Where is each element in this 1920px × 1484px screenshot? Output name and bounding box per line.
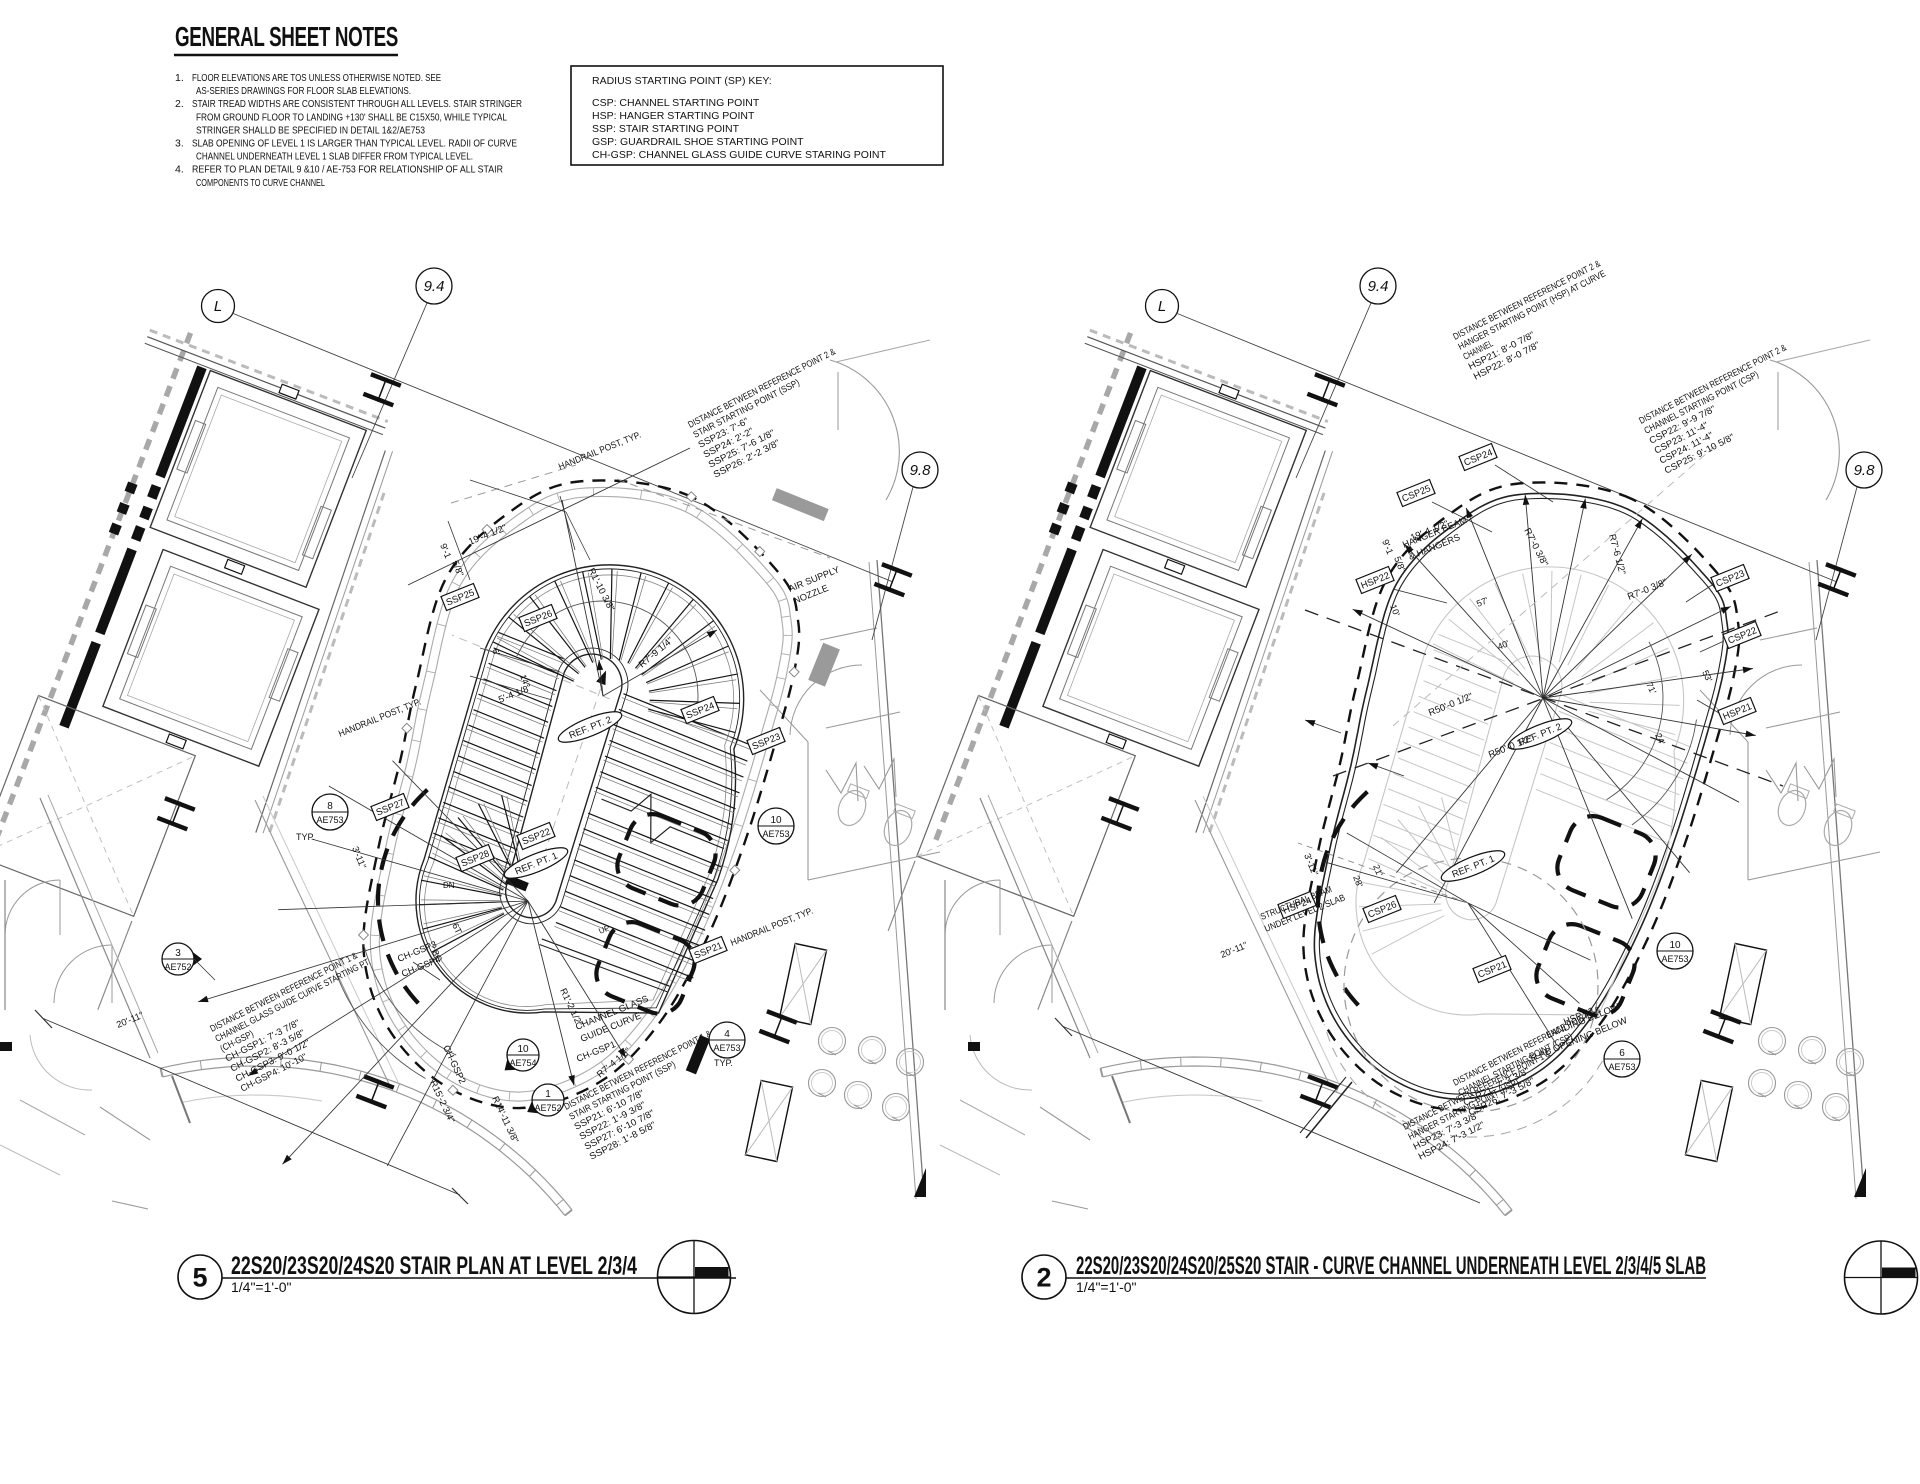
svg-text:10: 10 xyxy=(517,1044,529,1055)
svg-text:STRINGER SHALLD BE SPECIFIED I: STRINGER SHALLD BE SPECIFIED IN DETAIL 1… xyxy=(196,124,425,136)
svg-text:9.4: 9.4 xyxy=(424,278,445,295)
svg-text:TYP.: TYP. xyxy=(714,1058,733,1068)
svg-text:3.: 3. xyxy=(175,138,184,150)
svg-text:AE753: AE753 xyxy=(762,829,789,839)
svg-text:COMPONENTS TO CURVE CHANNEL: COMPONENTS TO CURVE CHANNEL xyxy=(196,177,325,189)
svg-text:RADIUS STARTING POINT (SP) KEY: RADIUS STARTING POINT (SP) KEY: xyxy=(592,75,772,87)
svg-text:AS-SERIES DRAWINGS FOR FLOOR S: AS-SERIES DRAWINGS FOR FLOOR SLAB ELEVAT… xyxy=(196,85,411,97)
svg-text:22S20/23S20/24S20/25S20 STAIR: 22S20/23S20/24S20/25S20 STAIR - CURVE CH… xyxy=(1076,1252,1706,1280)
svg-text:FROM GROUND FLOOR TO LANDING +: FROM GROUND FLOOR TO LANDING +130' SHALL… xyxy=(196,111,507,123)
svg-text:1.: 1. xyxy=(175,72,184,84)
svg-text:1/4"=1'-0": 1/4"=1'-0" xyxy=(1076,1279,1137,1295)
svg-text:AE753: AE753 xyxy=(1608,1062,1635,1072)
svg-text:AE753: AE753 xyxy=(316,815,343,825)
svg-text:5: 5 xyxy=(192,1263,207,1293)
svg-text:AE752: AE752 xyxy=(534,1103,561,1113)
svg-text:8: 8 xyxy=(327,801,333,812)
svg-text:10: 10 xyxy=(770,815,782,826)
svg-text:2: 2 xyxy=(1036,1263,1051,1293)
svg-text:AE753: AE753 xyxy=(1661,954,1688,964)
svg-text:GENERAL SHEET NOTES: GENERAL SHEET NOTES xyxy=(175,21,398,52)
svg-text:CSP: CHANNEL STARTING POINT: CSP: CHANNEL STARTING POINT xyxy=(592,97,760,109)
svg-text:HSP: HANGER STARTING POINT: HSP: HANGER STARTING POINT xyxy=(592,110,755,122)
svg-text:2.: 2. xyxy=(175,98,184,110)
svg-text:SLAB OPENING OF LEVEL 1 IS LAR: SLAB OPENING OF LEVEL 1 IS LARGER THAN T… xyxy=(192,138,517,150)
svg-text:CHANNEL UNDERNEATH LEVEL 1 SLA: CHANNEL UNDERNEATH LEVEL 1 SLAB DIFFER F… xyxy=(196,151,473,163)
svg-text:4.: 4. xyxy=(175,164,184,176)
svg-text:L: L xyxy=(214,298,222,315)
svg-text:6: 6 xyxy=(1619,1048,1625,1059)
svg-text:REFER TO PLAN DETAIL 9 &10 / A: REFER TO PLAN DETAIL 9 &10 / AE-753 FOR … xyxy=(192,164,503,176)
svg-text:4: 4 xyxy=(724,1029,730,1040)
svg-text:9.8: 9.8 xyxy=(910,462,932,479)
svg-text:AE752: AE752 xyxy=(164,962,191,972)
svg-text:STAIR TREAD WIDTHS ARE CONSIST: STAIR TREAD WIDTHS ARE CONSISTENT THROUG… xyxy=(192,98,522,110)
svg-text:L: L xyxy=(1158,298,1166,315)
svg-text:CH-GSP: CHANNEL GLASS GUIDE CU: CH-GSP: CHANNEL GLASS GUIDE CURVE STARIN… xyxy=(592,149,886,161)
svg-text:DN: DN xyxy=(443,881,455,890)
svg-text:GSP: GUARDRAIL SHOE STARTING P: GSP: GUARDRAIL SHOE STARTING POINT xyxy=(592,136,804,148)
svg-text:AE753: AE753 xyxy=(713,1043,740,1053)
svg-text:9.4: 9.4 xyxy=(1368,278,1389,295)
svg-text:AE754: AE754 xyxy=(509,1058,536,1068)
svg-text:TYP.: TYP. xyxy=(296,832,315,842)
svg-text:10: 10 xyxy=(1669,940,1681,951)
svg-text:9.8: 9.8 xyxy=(1854,462,1876,479)
svg-text:SSP: STAIR STARTING POINT: SSP: STAIR STARTING POINT xyxy=(592,123,740,135)
svg-text:FLOOR ELEVATIONS ARE TOS UNLES: FLOOR ELEVATIONS ARE TOS UNLESS OTHERWIS… xyxy=(192,72,441,84)
svg-text:3: 3 xyxy=(175,948,181,959)
svg-text:1: 1 xyxy=(545,1089,551,1100)
svg-text:1/4"=1'-0": 1/4"=1'-0" xyxy=(231,1279,292,1295)
svg-text:22S20/23S20/24S20 STAIR PLAN A: 22S20/23S20/24S20 STAIR PLAN AT LEVEL 2/… xyxy=(231,1252,637,1280)
